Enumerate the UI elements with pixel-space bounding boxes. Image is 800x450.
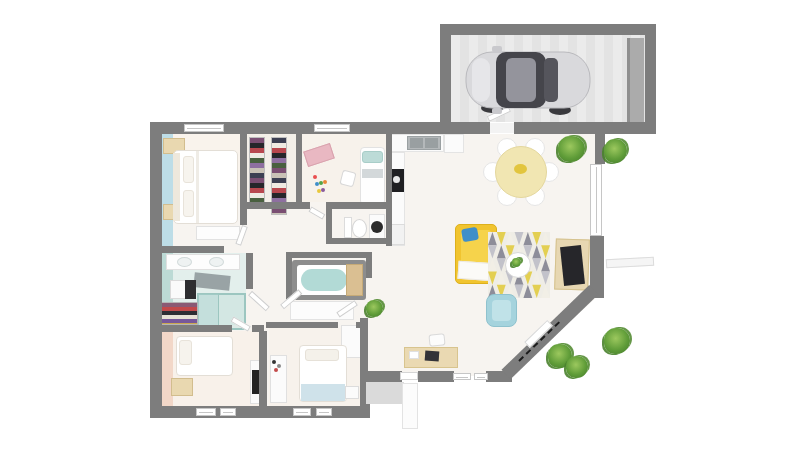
window-entry-2 — [474, 373, 488, 380]
wall-master-bottom — [162, 246, 224, 253]
garage-door-rail — [627, 38, 630, 122]
kitchen-cabinet-right — [444, 134, 464, 153]
coffee-table-plant — [512, 258, 521, 267]
bathroom-sink-1 — [177, 257, 192, 267]
wall-entry-bottom-a — [368, 371, 402, 382]
bath-hall-plant — [366, 300, 383, 317]
wall-closet-bottom — [240, 202, 300, 209]
bathtub-water — [301, 269, 347, 291]
bedroom3-shelf-items — [272, 360, 285, 398]
hall-desk-papers — [409, 351, 419, 359]
window-top-1 — [184, 124, 224, 132]
wall-left — [150, 122, 162, 418]
window-entry-1 — [453, 373, 471, 380]
wall-bottom — [150, 406, 370, 418]
wall-bathtub-left — [286, 252, 292, 300]
master-pillow-1 — [183, 156, 194, 183]
bathroom-sink-2 — [209, 257, 224, 267]
wc-round-sink — [371, 221, 383, 233]
front-door-leaf — [400, 372, 418, 380]
kids-bed-band — [362, 169, 383, 178]
wall-entry-bottom-b — [418, 371, 454, 382]
car — [462, 44, 594, 116]
sofa-pillow — [461, 227, 479, 243]
wall-kitchen — [386, 134, 392, 246]
wall-wc-left — [326, 209, 332, 241]
garage-wall-bottom-right — [514, 122, 656, 134]
floor-plan-canvas — [0, 0, 800, 450]
wc-toilet-bowl — [352, 219, 367, 238]
wall-bedroom3-top-a — [266, 322, 338, 328]
wall-master-lower — [240, 209, 247, 225]
wall-closet-kids — [296, 134, 302, 208]
front-door-path — [402, 383, 418, 429]
window-bottom-2 — [220, 408, 236, 416]
armchair-seat — [492, 300, 511, 321]
towel-shelf — [161, 302, 198, 325]
bedroom3-stool — [345, 386, 359, 399]
tv-screen — [560, 245, 585, 286]
kids-bed-pillow — [362, 151, 383, 163]
wall-bedroom-divider — [259, 331, 267, 406]
wall-wc-bottom — [326, 238, 388, 244]
dining-table-deco — [514, 164, 527, 174]
garage-door-threshold — [490, 123, 514, 133]
hall-desk-laptop — [425, 351, 440, 362]
wall-master-closet — [240, 134, 247, 208]
kitchen-sink-basin-2 — [425, 138, 438, 148]
washing-machine-lid — [185, 280, 196, 299]
bathtub-cabinet — [346, 264, 363, 296]
wall-bathtub-top — [286, 252, 372, 258]
bedroom3-blanket — [301, 384, 345, 401]
wall-kids-bottom-b — [326, 202, 388, 209]
master-dresser — [196, 226, 240, 240]
porch — [366, 382, 404, 404]
master-bed-headboard — [173, 153, 180, 221]
window-right — [590, 164, 602, 236]
wall-bathtub-right — [366, 252, 372, 278]
window-bottom-4 — [316, 408, 332, 416]
master-bed-fold — [196, 151, 199, 223]
wall-bathroom-bottom-a — [162, 325, 232, 332]
closet-rack-1 — [249, 137, 265, 205]
bedroom2-nightstand — [171, 378, 193, 396]
wall-bathroom-right — [246, 253, 253, 289]
wall-kids-bottom-a — [296, 202, 310, 209]
window-bottom-1 — [196, 408, 216, 416]
hall-desk-chair — [428, 333, 445, 347]
kitchen-sink-basin-1 — [410, 138, 423, 148]
wall-bedroom3-right — [360, 318, 368, 382]
window-top-2 — [314, 124, 350, 132]
wc-toilet-tank — [344, 217, 352, 238]
garage-wall-right — [645, 24, 656, 134]
bedroom3-pillow — [305, 349, 339, 361]
master-pillow-2 — [183, 190, 194, 217]
garage-wall-left — [440, 24, 451, 134]
terrace-plant-2 — [566, 356, 588, 378]
bedroom2-pillow — [179, 340, 192, 365]
kids-toy-rug — [313, 175, 335, 195]
kitchen-cooktop-burner — [393, 176, 400, 183]
garage-wall-top — [440, 24, 656, 35]
window-bottom-3 — [293, 408, 311, 416]
